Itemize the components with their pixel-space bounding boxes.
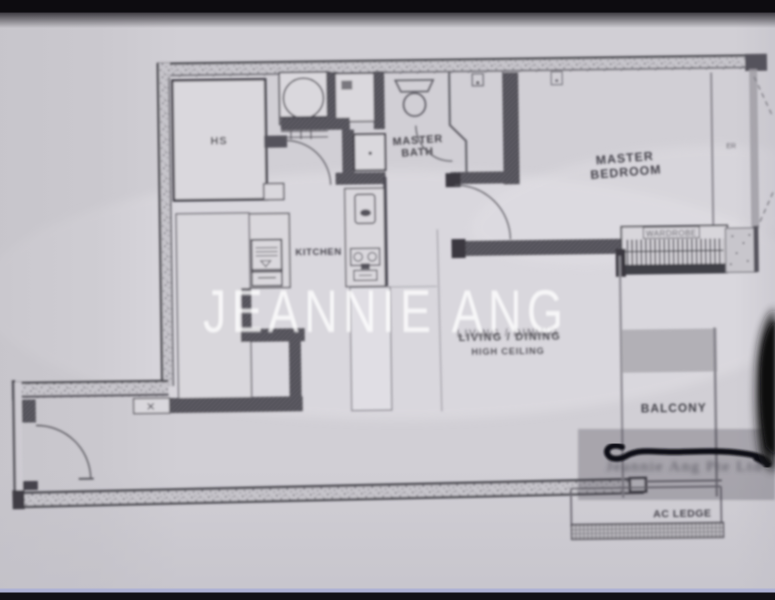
svg-text:HIGH CEILING: HIGH CEILING [471,346,544,357]
svg-text:KITCHEN: KITCHEN [295,247,342,259]
svg-text:ER: ER [726,143,736,150]
svg-text:HS: HS [210,135,227,147]
svg-text:Jeannie Ang Pte Ltd: Jeannie Ang Pte Ltd [606,459,763,475]
svg-text:AC LEDGE: AC LEDGE [653,508,711,521]
svg-text:WARDROBE: WARDROBE [646,229,697,239]
svg-text:BALCONY: BALCONY [641,401,707,416]
svg-text:JEANNIE ANG: JEANNIE ANG [203,278,568,345]
